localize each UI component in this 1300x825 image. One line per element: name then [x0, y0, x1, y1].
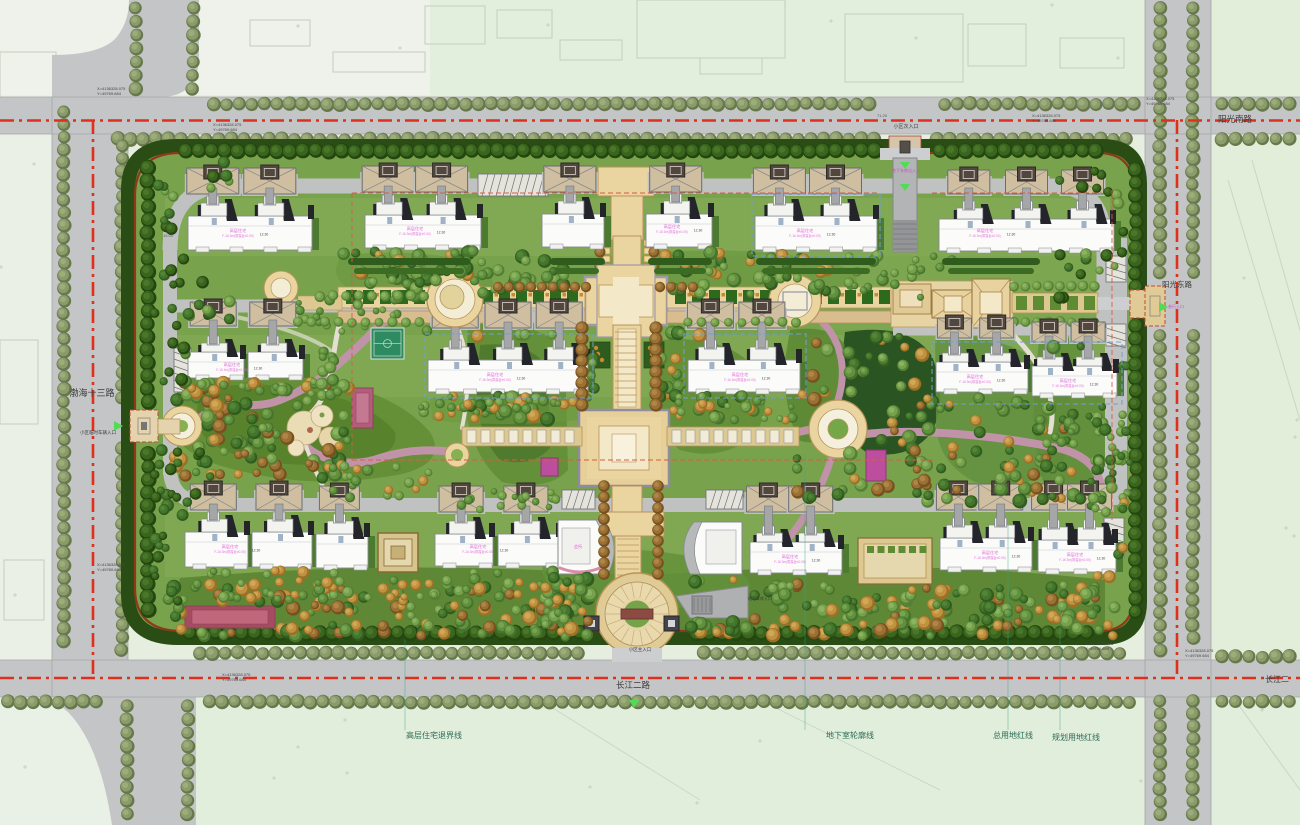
svg-text:Y=49769.684: Y=49769.684: [222, 677, 247, 682]
svg-text:高层住宅: 高层住宅: [224, 361, 241, 368]
svg-text:12.30: 12.30: [500, 549, 509, 553]
svg-text:高层住宅: 高层住宅: [407, 225, 424, 232]
svg-text:F-16 3m(带露台±0.00): F-16 3m(带露台±0.00): [1059, 557, 1091, 562]
svg-text:会所: 会所: [574, 543, 582, 549]
svg-text:12.30: 12.30: [1007, 233, 1016, 237]
svg-text:阳光东路: 阳光东路: [1162, 279, 1192, 289]
svg-text:F-16 3m(带露台±0.00): F-16 3m(带露台±0.00): [462, 549, 494, 554]
svg-text:高层住宅: 高层住宅: [1067, 551, 1084, 558]
svg-text:长江二路: 长江二路: [616, 680, 651, 690]
svg-text:F-16 3m(带露台±0.00): F-16 3m(带露台±0.00): [969, 233, 1001, 238]
svg-text:12.30: 12.30: [252, 549, 261, 553]
svg-text:12.30: 12.30: [762, 377, 771, 381]
svg-text:地下车库出入口: 地下车库出入口: [892, 167, 920, 173]
svg-text:F-16 3m(带露台±0.00): F-16 3m(带露台±0.00): [1052, 383, 1084, 388]
svg-text:高层住宅: 高层住宅: [782, 553, 799, 560]
svg-text:阳光南路: 阳光南路: [1218, 114, 1253, 124]
svg-text:12.30: 12.30: [1097, 557, 1106, 561]
svg-text:F-16 3m(带露台±0.00): F-16 3m(带露台±0.00): [479, 377, 511, 382]
svg-text:Y=49769.684: Y=49769.684: [97, 91, 122, 96]
svg-text:Y=49769.684: Y=49769.684: [1085, 646, 1110, 651]
svg-text:渤海十三路: 渤海十三路: [69, 387, 114, 398]
svg-text:高层住宅: 高层住宅: [470, 543, 487, 550]
svg-text:地下室轮廓线: 地下室轮廓线: [826, 730, 874, 740]
svg-text:小区临时车辆入口: 小区临时车辆入口: [80, 429, 116, 436]
svg-text:12.30: 12.30: [694, 229, 703, 233]
svg-text:高层住宅: 高层住宅: [797, 227, 814, 234]
svg-text:总用地红线: 总用地红线: [993, 730, 1033, 740]
svg-text:高层住宅: 高层住宅: [732, 371, 749, 378]
svg-text:规划用地红线: 规划用地红线: [1052, 732, 1100, 742]
svg-text:15.00: 15.00: [163, 233, 174, 238]
svg-text:12.30: 12.30: [254, 367, 263, 371]
svg-text:F-16 3m(带露台±0.00): F-16 3m(带露台±0.00): [216, 367, 248, 372]
svg-text:F-16 3m(带露台±0.00): F-16 3m(带露台±0.00): [724, 377, 756, 382]
svg-text:Y=49769.684: Y=49769.684: [97, 567, 122, 572]
svg-text:高层住宅: 高层住宅: [487, 371, 504, 378]
svg-text:12.30: 12.30: [812, 559, 821, 563]
svg-text:高层住宅: 高层住宅: [977, 227, 994, 234]
svg-text:12.00: 12.00: [1125, 488, 1136, 493]
svg-text:Y=49769.684: Y=49769.684: [213, 127, 238, 132]
svg-text:高层住宅退界线: 高层住宅退界线: [406, 730, 462, 740]
svg-text:F-16 3m(带露台±0.00): F-16 3m(带露台±0.00): [399, 231, 431, 236]
svg-text:Y=49769.684: Y=49769.684: [1146, 101, 1171, 106]
svg-text:F-16 3m(带露台±0.00): F-16 3m(带露台±0.00): [974, 555, 1006, 560]
svg-text:Y=49769.684: Y=49769.684: [1185, 653, 1210, 658]
svg-text:高层住宅: 高层住宅: [230, 227, 247, 234]
svg-text:12.30: 12.30: [260, 233, 269, 237]
svg-text:12.30: 12.30: [997, 379, 1006, 383]
svg-text:F-16 3m(带露台±0.00): F-16 3m(带露台±0.00): [222, 233, 254, 238]
svg-text:小区次入口: 小区次入口: [893, 123, 918, 130]
svg-text:12.30: 12.30: [1012, 555, 1021, 559]
svg-text:高层住宅: 高层住宅: [664, 223, 681, 230]
svg-text:Y=49769.684: Y=49769.684: [1032, 118, 1057, 123]
svg-text:地下车库入口: 地下车库入口: [748, 595, 772, 601]
svg-text:长江二: 长江二: [1265, 674, 1289, 684]
svg-text:F-16 3m(带露台±0.00): F-16 3m(带露台±0.00): [774, 559, 806, 564]
svg-text:F-16 3m(带露台±0.00): F-16 3m(带露台±0.00): [214, 549, 246, 554]
svg-text:高层住宅: 高层住宅: [967, 373, 984, 380]
svg-text:F-16 3m(带露台±0.00): F-16 3m(带露台±0.00): [656, 229, 688, 234]
svg-text:F-16 3m(带露台±0.00): F-16 3m(带露台±0.00): [959, 379, 991, 384]
svg-text:12.30: 12.30: [827, 233, 836, 237]
svg-text:12.30: 12.30: [437, 231, 446, 235]
svg-text:12.30: 12.30: [1090, 383, 1099, 387]
svg-text:小区主入口: 小区主入口: [629, 646, 652, 653]
svg-text:高层住宅: 高层住宅: [982, 549, 999, 556]
svg-text:71.20: 71.20: [877, 113, 888, 118]
svg-text:高层住宅: 高层住宅: [222, 543, 239, 550]
svg-text:12.30: 12.30: [517, 377, 526, 381]
svg-text:高层住宅: 高层住宅: [1060, 377, 1077, 384]
svg-text:F-16 3m(带露台±0.00): F-16 3m(带露台±0.00): [789, 233, 821, 238]
svg-text:参行入口: 参行入口: [1168, 303, 1184, 309]
